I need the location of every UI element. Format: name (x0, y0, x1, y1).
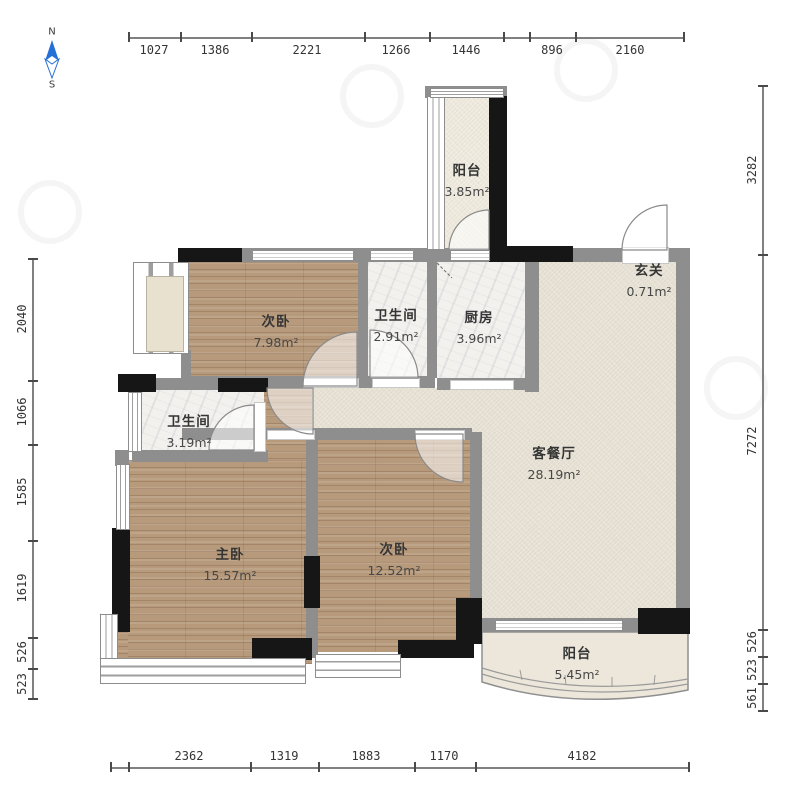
dim-label: 523 (745, 659, 759, 681)
room-label-bathroom-2: 卫生间 3.19m² (166, 412, 211, 452)
tick (575, 32, 577, 42)
room-label-kitchen: 厨房 3.96m² (456, 308, 501, 348)
dim-label: 1386 (201, 43, 230, 57)
dim-label: 523 (15, 673, 29, 695)
tick (758, 683, 768, 685)
dim-label: 2221 (293, 43, 322, 57)
tick (503, 32, 505, 42)
room-label-balcony-bottom: 阳台 5.45m² (554, 644, 599, 684)
tick (758, 254, 768, 256)
room-label-balcony-top: 阳台 3.85m² (444, 161, 489, 201)
tick (128, 762, 130, 772)
door-arc-balcony-top (449, 210, 489, 250)
tick (110, 762, 112, 772)
dimension-line-top (128, 37, 685, 39)
dim-label: 896 (541, 43, 563, 57)
tick (688, 762, 690, 772)
door-arc-bathroom-2 (209, 405, 254, 450)
compass-south-label: S (49, 80, 55, 91)
tick (758, 656, 768, 658)
door-arc-master-bedroom (267, 388, 313, 434)
dim-label: 1066 (15, 398, 29, 427)
tick (251, 32, 253, 42)
compass-needle-south (45, 59, 59, 78)
room-label-entry: 玄关 0.71m² (626, 261, 671, 301)
dim-label: 2040 (15, 305, 29, 334)
room-label-bedroom-2: 次卧 12.52m² (368, 540, 421, 580)
dim-label: 3282 (745, 156, 759, 185)
dim-label: 7272 (745, 427, 759, 456)
tick (28, 637, 38, 639)
tick (758, 85, 768, 87)
dim-label: 1319 (270, 749, 299, 763)
dim-label: 2160 (616, 43, 645, 57)
tick (250, 762, 252, 772)
floor-plan: 阳台 3.85m² 次卧 7.98m² 卫生间 2.91m² 厨房 3.96m²… (0, 0, 800, 800)
tick (683, 32, 685, 42)
dim-label: 526 (15, 641, 29, 663)
tick (28, 698, 38, 700)
door-arc-bedroom-1 (303, 332, 357, 386)
tick (28, 258, 38, 260)
door-arc-bedroom-2 (415, 434, 463, 482)
dim-label: 1585 (15, 478, 29, 507)
tick (364, 32, 366, 42)
tick (475, 762, 477, 772)
tick (758, 710, 768, 712)
compass-needle-north (45, 40, 59, 61)
room-label-bathroom-1: 卫生间 2.91m² (373, 306, 418, 346)
kitchen-door-symbol (437, 263, 452, 278)
tick (28, 540, 38, 542)
tick (414, 762, 416, 772)
tick (28, 668, 38, 670)
dim-label: 1619 (15, 574, 29, 603)
dim-label: 4182 (568, 749, 597, 763)
tick (758, 629, 768, 631)
dim-label: 2362 (175, 749, 204, 763)
tick (28, 380, 38, 382)
dimension-line-right (762, 85, 764, 712)
dim-label: 526 (745, 631, 759, 653)
dim-label: 1883 (352, 749, 381, 763)
dimension-line-left (32, 258, 34, 700)
dim-label: 1266 (382, 43, 411, 57)
dimension-line-bottom (110, 767, 690, 769)
door-arc-entry (622, 205, 667, 250)
room-label-bedroom-1: 次卧 7.98m² (253, 312, 298, 352)
tick (529, 32, 531, 42)
door-arc-layer (0, 0, 800, 800)
tick (429, 32, 431, 42)
tick (318, 762, 320, 772)
dim-label: 1027 (140, 43, 169, 57)
dim-label: 1446 (452, 43, 481, 57)
dim-label: 561 (745, 687, 759, 709)
room-label-living-room: 客餐厅 28.19m² (528, 444, 581, 484)
room-label-master-bedroom: 主卧 15.57m² (204, 545, 257, 585)
tick (28, 444, 38, 446)
tick (128, 32, 130, 42)
dim-label: 1170 (430, 749, 459, 763)
tick (180, 32, 182, 42)
